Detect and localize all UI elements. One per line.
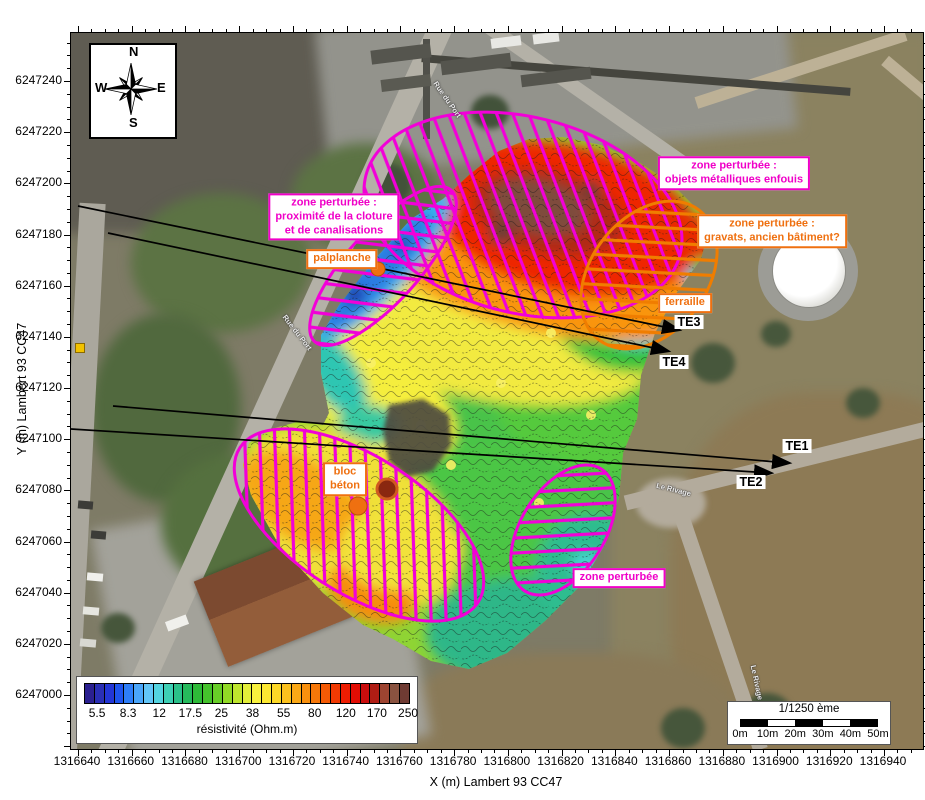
axis-tick bbox=[199, 749, 200, 753]
x-tick-label: 1316720 bbox=[269, 754, 316, 768]
annotation-line: objets métalliques enfouis bbox=[665, 173, 803, 187]
x-tick-label: 1316940 bbox=[860, 754, 907, 768]
annotation-line: zone perturbée : bbox=[704, 217, 840, 231]
axis-tick bbox=[441, 749, 442, 753]
annotation-zone-perturbee: zone perturbée bbox=[573, 568, 666, 588]
colorbar-tick-label: 38 bbox=[246, 706, 259, 720]
axis-tick bbox=[172, 749, 173, 753]
colorbar-cell bbox=[105, 684, 115, 703]
x-axis-title: X (m) Lambert 93 CC47 bbox=[70, 775, 922, 789]
colorbar-cell bbox=[154, 684, 164, 703]
colorbar-cell bbox=[183, 684, 193, 703]
axis-tick bbox=[683, 749, 684, 753]
axis-tick bbox=[468, 749, 469, 753]
annotation-line: gravats, ancien bâtiment? bbox=[704, 231, 840, 245]
route-badge bbox=[75, 343, 85, 353]
colorbar-cell bbox=[331, 684, 341, 703]
axis-tick bbox=[64, 593, 71, 594]
colorbar-tick-label: 55 bbox=[277, 706, 290, 720]
annotation-line: ferraille bbox=[665, 296, 705, 310]
axis-tick bbox=[844, 749, 845, 753]
compass-south-label: S bbox=[129, 115, 138, 130]
scale-segment bbox=[795, 720, 822, 726]
axis-tick bbox=[790, 749, 791, 753]
colorbar-cell bbox=[95, 684, 105, 703]
colorbar-tick-label: 12 bbox=[153, 706, 166, 720]
colorbar-tick-label: 25 bbox=[215, 706, 228, 720]
axis-tick bbox=[615, 26, 616, 33]
colorbar-tick-labels: 5.58.31217.525385580120170250 bbox=[84, 706, 410, 720]
axis-tick bbox=[360, 749, 361, 753]
y-tick-label: 6247140 bbox=[2, 329, 62, 343]
y-tick-label: 6247160 bbox=[2, 278, 62, 292]
axis-tick bbox=[64, 235, 71, 236]
colorbar-cell bbox=[262, 684, 272, 703]
colorbar-cell bbox=[164, 684, 174, 703]
colorbar-tick-label: 120 bbox=[336, 706, 356, 720]
colorbar-cell bbox=[115, 684, 125, 703]
axis-tick bbox=[91, 749, 92, 753]
axis-tick bbox=[911, 749, 912, 753]
colorbar-cell bbox=[370, 684, 380, 703]
y-tick-label: 6247060 bbox=[2, 534, 62, 548]
colorbar-cell bbox=[144, 684, 154, 703]
colorbar-cell bbox=[174, 684, 184, 703]
axis-tick bbox=[602, 749, 603, 753]
x-tick-label: 1316900 bbox=[752, 754, 799, 768]
axis-tick bbox=[884, 26, 885, 33]
colorbar-tick-label: 5.5 bbox=[89, 706, 106, 720]
annotation-palplanche: palplanche bbox=[306, 249, 377, 269]
axis-tick bbox=[347, 26, 348, 33]
axis-tick bbox=[387, 749, 388, 753]
scale-tick-label: 40m bbox=[840, 728, 861, 740]
colorbar-cell bbox=[213, 684, 223, 703]
axis-tick bbox=[333, 749, 334, 753]
axis-tick bbox=[736, 749, 737, 753]
axis-tick bbox=[871, 749, 872, 753]
axis-tick bbox=[763, 749, 764, 753]
scale-ratio: 1/1250 ème bbox=[728, 703, 890, 715]
scale-tick-label: 20m bbox=[784, 728, 805, 740]
axis-tick bbox=[266, 749, 267, 753]
transect-label-te1: TE1 bbox=[783, 439, 812, 453]
annotation-line: zone perturbée : bbox=[665, 159, 803, 173]
axis-tick bbox=[535, 749, 536, 753]
colorbar-cell bbox=[351, 684, 361, 703]
axis-tick bbox=[320, 749, 321, 753]
colorbar-cell bbox=[390, 684, 400, 703]
compass-east-label: E bbox=[157, 80, 166, 95]
x-tick-label: 1316860 bbox=[645, 754, 692, 768]
y-tick-label: 6247040 bbox=[2, 585, 62, 599]
transect-label-te4: TE4 bbox=[660, 355, 689, 369]
colorbar-tick-label: 80 bbox=[308, 706, 321, 720]
annotation-layer: zone perturbée : proximité de la cloture… bbox=[71, 33, 923, 749]
y-tick-label: 6247220 bbox=[2, 124, 62, 138]
axis-tick bbox=[64, 81, 71, 82]
y-axis-title: Y (m) Lambert 93 CC47 bbox=[15, 289, 29, 489]
axis-tick bbox=[803, 749, 804, 753]
colorbar-tick-label: 17.5 bbox=[179, 706, 202, 720]
axis-tick bbox=[64, 644, 71, 645]
annotation-zone-cloture: zone perturbée : proximité de la cloture… bbox=[268, 193, 399, 240]
axis-tick bbox=[293, 26, 294, 33]
colorbar-cell bbox=[252, 684, 262, 703]
colorbar-cell bbox=[321, 684, 331, 703]
annotation-line: zone perturbée : bbox=[275, 196, 392, 210]
axis-tick bbox=[656, 749, 657, 753]
axis-tick bbox=[64, 132, 71, 133]
axis-tick bbox=[185, 26, 186, 33]
colorbar-cell bbox=[282, 684, 292, 703]
axis-tick bbox=[575, 749, 576, 753]
colorbar-cells bbox=[84, 683, 410, 704]
axis-tick bbox=[669, 26, 670, 33]
axis-tick bbox=[64, 746, 71, 747]
colorbar-cell bbox=[223, 684, 233, 703]
colorbar-cell bbox=[341, 684, 351, 703]
axis-tick bbox=[253, 749, 254, 753]
axis-tick bbox=[777, 26, 778, 33]
colorbar-cell bbox=[85, 684, 95, 703]
colorbar-cell bbox=[380, 684, 390, 703]
scale-segments bbox=[740, 719, 878, 727]
colorbar-cell bbox=[292, 684, 302, 703]
colorbar-tick-label: 250 bbox=[398, 706, 418, 720]
axis-tick bbox=[105, 749, 106, 753]
scale-segment bbox=[768, 720, 795, 726]
x-tick-label: 1316660 bbox=[107, 754, 154, 768]
y-tick-label: 6247080 bbox=[2, 482, 62, 496]
annotation-line: palplanche bbox=[313, 252, 370, 266]
annotation-bloc-beton: bloc béton bbox=[323, 462, 367, 496]
scale-tick-label: 10m bbox=[757, 728, 778, 740]
figure-canvas: Rue du PortRue du PortLe RivageLe Rivage bbox=[0, 0, 925, 800]
y-tick-label: 6247200 bbox=[2, 175, 62, 189]
axis-tick bbox=[306, 749, 307, 753]
axis-tick bbox=[64, 388, 71, 389]
annotation-line: et de canalisations bbox=[275, 224, 392, 238]
y-tick-label: 6247120 bbox=[2, 380, 62, 394]
axis-tick bbox=[508, 26, 509, 33]
annotation-zone-gravats: zone perturbée : gravats, ancien bâtimen… bbox=[697, 214, 847, 248]
colorbar-cell bbox=[124, 684, 134, 703]
compass-star bbox=[104, 62, 158, 116]
axis-tick bbox=[830, 26, 831, 33]
annotation-line: bloc bbox=[330, 465, 360, 479]
axis-tick bbox=[64, 542, 71, 543]
axis-tick bbox=[64, 337, 71, 338]
axis-tick bbox=[494, 749, 495, 753]
axis-tick bbox=[642, 749, 643, 753]
axis-tick bbox=[400, 26, 401, 33]
colorbar-cell bbox=[400, 684, 409, 703]
map-plot-area: Rue du PortRue du PortLe RivageLe Rivage bbox=[70, 32, 924, 750]
axis-tick bbox=[64, 490, 71, 491]
y-tick-label: 6247000 bbox=[2, 687, 62, 701]
axis-tick bbox=[817, 749, 818, 753]
axis-tick bbox=[427, 749, 428, 753]
colorbar-cell bbox=[193, 684, 203, 703]
y-tick-label: 6247240 bbox=[2, 73, 62, 87]
annotation-line: proximité de la cloture bbox=[275, 210, 392, 224]
annotation-ferraille: ferraille bbox=[658, 293, 712, 313]
axis-tick bbox=[159, 749, 160, 753]
colorbar-cell bbox=[311, 684, 321, 703]
axis-tick bbox=[145, 749, 146, 753]
transect-label-te2: TE2 bbox=[737, 475, 766, 489]
scale-segment bbox=[741, 720, 768, 726]
axis-tick bbox=[588, 749, 589, 753]
y-tick-label: 6247020 bbox=[2, 636, 62, 650]
colorbar-cell bbox=[272, 684, 282, 703]
axis-tick bbox=[374, 749, 375, 753]
x-tick-label: 1316640 bbox=[54, 754, 101, 768]
axis-tick bbox=[723, 26, 724, 33]
colorbar-title: résistivité (Ohm.m) bbox=[77, 722, 417, 736]
x-tick-label: 1316780 bbox=[430, 754, 477, 768]
axis-tick bbox=[64, 183, 71, 184]
axis-tick bbox=[118, 749, 119, 753]
compass-north-label: N bbox=[129, 44, 138, 59]
colorbar-cell bbox=[243, 684, 253, 703]
axis-tick bbox=[709, 749, 710, 753]
colorbar-cell bbox=[233, 684, 243, 703]
colorbar-tick-label: 8.3 bbox=[120, 706, 137, 720]
x-tick-label: 1316920 bbox=[806, 754, 853, 768]
axis-tick bbox=[696, 749, 697, 753]
annotation-line: zone perturbée bbox=[580, 571, 659, 585]
axis-tick bbox=[78, 26, 79, 33]
x-tick-label: 1316740 bbox=[322, 754, 369, 768]
scale-segment bbox=[823, 720, 850, 726]
colorbar-tick-label: 170 bbox=[367, 706, 387, 720]
transect-label-te3: TE3 bbox=[675, 315, 704, 329]
axis-tick bbox=[548, 749, 549, 753]
axis-tick bbox=[857, 749, 858, 753]
x-tick-label: 1316820 bbox=[537, 754, 584, 768]
colorbar-cell bbox=[134, 684, 144, 703]
axis-tick bbox=[132, 26, 133, 33]
scale-segment bbox=[850, 720, 877, 726]
axis-tick bbox=[897, 749, 898, 753]
annotation-zone-metal: zone perturbée : objets métalliques enfo… bbox=[658, 156, 810, 190]
scale-tick-label: 0m bbox=[732, 728, 747, 740]
colorbar-cell bbox=[302, 684, 312, 703]
axis-tick bbox=[414, 749, 415, 753]
annotation-line: béton bbox=[330, 479, 360, 493]
x-tick-label: 1316700 bbox=[215, 754, 262, 768]
colorbar-cell bbox=[361, 684, 371, 703]
y-tick-label: 6247180 bbox=[2, 227, 62, 241]
scale-tick-label: 30m bbox=[812, 728, 833, 740]
axis-tick bbox=[226, 749, 227, 753]
x-tick-label: 1316800 bbox=[484, 754, 531, 768]
axis-tick bbox=[64, 286, 71, 287]
scale-tick-labels: 0m10m20m30m40m50m bbox=[728, 728, 890, 742]
axis-tick bbox=[212, 749, 213, 753]
axis-tick bbox=[64, 695, 71, 696]
axis-tick bbox=[629, 749, 630, 753]
axis-tick bbox=[454, 26, 455, 33]
colorbar-legend: 5.58.31217.525385580120170250 résistivit… bbox=[76, 676, 418, 744]
colorbar-cell bbox=[203, 684, 213, 703]
scale-tick-label: 50m bbox=[867, 728, 888, 740]
y-tick-label: 6247100 bbox=[2, 431, 62, 445]
axis-tick bbox=[481, 749, 482, 753]
compass-rose: N E S W bbox=[89, 43, 177, 139]
axis-tick bbox=[239, 26, 240, 33]
axis-tick bbox=[750, 749, 751, 753]
x-tick-label: 1316840 bbox=[591, 754, 638, 768]
axis-tick bbox=[521, 749, 522, 753]
x-tick-label: 1316880 bbox=[698, 754, 745, 768]
scale-bar: 1/1250 ème 0m10m20m30m40m50m bbox=[727, 701, 891, 745]
x-tick-label: 1316680 bbox=[161, 754, 208, 768]
x-tick-label: 1316760 bbox=[376, 754, 423, 768]
axis-tick bbox=[280, 749, 281, 753]
axis-tick bbox=[562, 26, 563, 33]
axis-tick bbox=[64, 439, 71, 440]
